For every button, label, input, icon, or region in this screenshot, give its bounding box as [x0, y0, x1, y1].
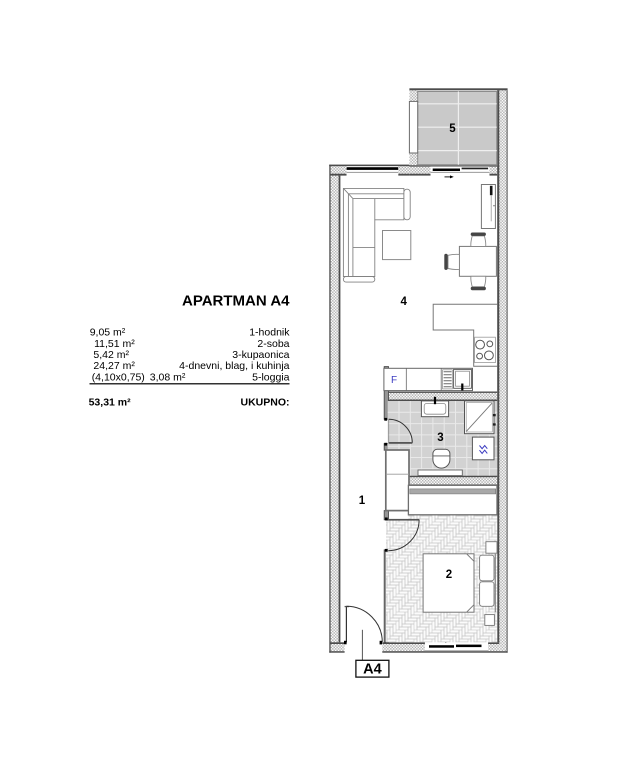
svg-text:9,05 m²: 9,05 m² — [90, 327, 126, 339]
svg-text:F: F — [391, 375, 397, 386]
svg-text:3-kupaonica: 3-kupaonica — [232, 349, 289, 361]
svg-text:1-hodnik: 1-hodnik — [249, 327, 290, 339]
svg-text:A4: A4 — [363, 661, 382, 677]
svg-text:(4,10x0,75): (4,10x0,75) — [92, 371, 145, 383]
svg-text:4-dnevni, blag, i kuhinja: 4-dnevni, blag, i kuhinja — [179, 360, 289, 372]
svg-text:3: 3 — [437, 432, 443, 444]
svg-text:3,08 m²: 3,08 m² — [150, 371, 186, 383]
svg-text:11,51 m²: 11,51 m² — [94, 338, 135, 350]
svg-text:53,31 m²: 53,31 m² — [89, 397, 132, 409]
svg-text:5: 5 — [449, 123, 456, 135]
svg-text:APARTMAN A4: APARTMAN A4 — [182, 293, 290, 310]
svg-text:UKUPNO:: UKUPNO: — [241, 397, 290, 409]
svg-text:5-loggia: 5-loggia — [252, 371, 290, 383]
svg-text:2: 2 — [446, 569, 452, 581]
svg-text:1: 1 — [359, 495, 366, 507]
svg-text:4: 4 — [400, 296, 407, 308]
svg-text:2-soba: 2-soba — [257, 338, 289, 350]
svg-text:24,27 m²: 24,27 m² — [93, 360, 135, 372]
svg-text:5,42 m²: 5,42 m² — [93, 349, 129, 361]
